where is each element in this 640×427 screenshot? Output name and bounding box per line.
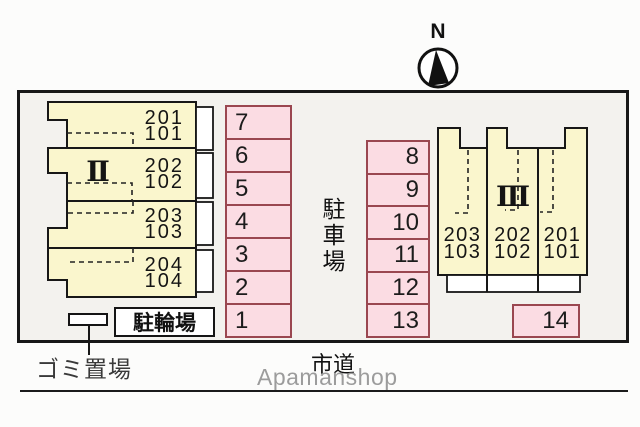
parking-column-middle: 8 9 10 11 12 13: [366, 140, 430, 338]
room-number: 104: [145, 273, 184, 289]
room-number: 102: [145, 174, 184, 190]
building-2-unit-4: 204 104: [94, 250, 184, 296]
bicycle-parking-box: 駐輪場: [114, 307, 215, 337]
room-number: 103: [145, 224, 184, 240]
compass-north-label: N: [423, 20, 453, 44]
garbage-area-box: [68, 313, 108, 326]
parking-space: 10: [368, 207, 428, 240]
parking-column-left: 7 6 5 4 3 2 1: [225, 105, 292, 338]
parking-space: 3: [227, 239, 290, 272]
parking-space: 4: [227, 206, 290, 239]
room-number: 102: [494, 244, 532, 261]
building-2-unit-3: 203 103: [94, 202, 184, 246]
building-2-unit-1: 201 101: [94, 104, 184, 148]
parking-space: 13: [368, 305, 428, 336]
parking-space: 11: [368, 240, 428, 273]
site-plan-page: N 201 101 202 102 203 103 204 104 Ⅱ 203 …: [0, 0, 640, 427]
parking-space: 12: [368, 273, 428, 306]
room-number: 103: [444, 244, 482, 261]
building-3-unit-3: 201 101: [539, 224, 586, 264]
compass-icon: [419, 49, 457, 87]
building-3-label: Ⅲ: [496, 180, 530, 213]
parking-space-14: 14: [512, 304, 580, 338]
room-number: 101: [544, 244, 582, 261]
parking-space: 1: [227, 305, 290, 336]
parking-space: 2: [227, 272, 290, 305]
parking-space: 5: [227, 173, 290, 206]
parking-space: 9: [368, 175, 428, 208]
parking-space: 6: [227, 140, 290, 173]
parking-area-label: 駐車場: [315, 197, 349, 281]
building-3-unit-1: 203 103: [439, 224, 486, 264]
building-2-label: Ⅱ: [79, 155, 117, 188]
watermark-text: Apamanshop: [257, 364, 398, 391]
parking-space: 8: [368, 142, 428, 175]
building-3-unit-2: 202 102: [489, 224, 537, 264]
garbage-area-label: ゴミ置場: [36, 350, 132, 384]
parking-space: 7: [227, 107, 290, 140]
room-number: 101: [145, 126, 184, 142]
